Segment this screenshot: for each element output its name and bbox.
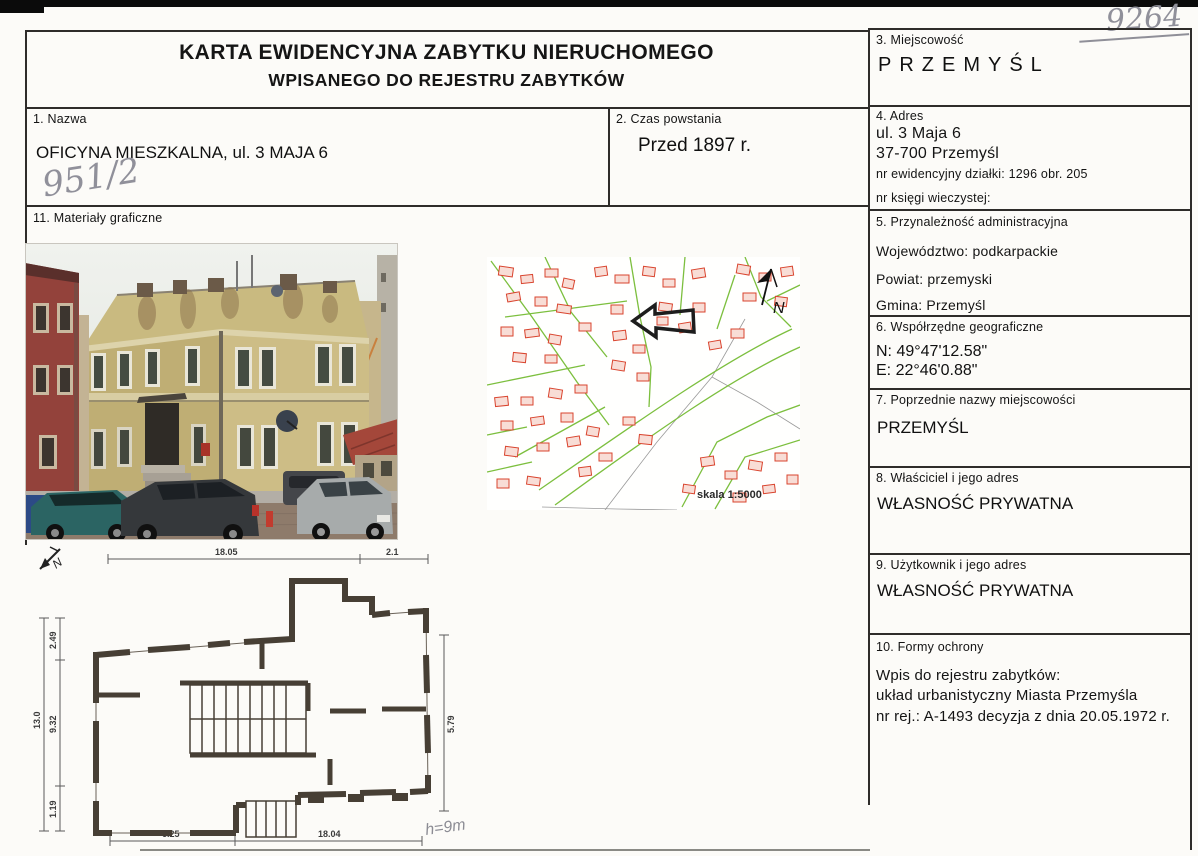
card-title-line1: KARTA EWIDENCYJNA ZABYTKU NIERUCHOMEGO bbox=[25, 41, 868, 65]
downspout bbox=[219, 331, 223, 495]
chimney bbox=[173, 280, 187, 294]
map-north-label: N bbox=[773, 300, 785, 317]
address-city: 37-700 Przemyśl bbox=[876, 144, 1088, 164]
grid-line bbox=[25, 205, 868, 207]
mid-cornice bbox=[83, 393, 369, 400]
dimension-label: 18.05 bbox=[215, 547, 238, 557]
card-title-line2: WPISANEGO DO REJESTRU ZABYTKÓW bbox=[25, 70, 868, 91]
grid-line bbox=[25, 107, 868, 109]
grid-line bbox=[868, 209, 1192, 211]
protection-line3: nr rej.: A-1493 decyzja z dnia 20.05.197… bbox=[876, 707, 1170, 727]
commune-value: Gmina: Przemyśl bbox=[876, 297, 986, 313]
user-value: WŁASNOŚĆ PRYWATNA bbox=[877, 581, 1073, 601]
voivodeship-value: Województwo: podkarpackie bbox=[876, 243, 1058, 259]
section-3-label: 3. Miejscowość bbox=[876, 33, 964, 47]
grid-line bbox=[868, 388, 1192, 390]
scan-edge-artifact-top bbox=[0, 0, 1198, 7]
section-10-label: 10. Formy ochrony bbox=[876, 640, 984, 654]
grid-line bbox=[868, 28, 1192, 30]
section-6-label: 6. Współrzędne geograficzne bbox=[876, 320, 1043, 334]
section-7-label: 7. Poprzednie nazwy miejscowości bbox=[876, 393, 1076, 407]
grid-line bbox=[868, 553, 1192, 555]
wall-box bbox=[201, 443, 210, 456]
neighbour-building-left bbox=[25, 263, 79, 507]
floor-plan-illustration: N 18.05 2.1 13.0 2.49 9.3 bbox=[30, 543, 470, 855]
map-scale-label: skala 1:5000 bbox=[697, 489, 762, 501]
grid-line bbox=[868, 28, 870, 805]
chimney bbox=[323, 281, 337, 293]
address-plot-number: nr ewidencyjny działki: 1296 obr. 205 bbox=[876, 167, 1088, 183]
grid-line bbox=[868, 466, 1192, 468]
building-photo bbox=[25, 243, 398, 540]
satellite-dish-icon bbox=[271, 285, 283, 297]
former-names-value: PRZEMYŚL bbox=[877, 418, 969, 438]
dimension-label: 9.32 bbox=[48, 715, 58, 733]
dimension-label: 2.1 bbox=[386, 547, 399, 557]
owner-value: WŁASNOŚĆ PRYWATNA bbox=[877, 494, 1073, 514]
protection-line2: układ urbanistyczny Miasta Przemyśla bbox=[876, 686, 1170, 706]
location-map-illustration: N skala 1:5000 bbox=[487, 257, 800, 510]
heritage-record-card: 9264 KARTA EWIDENCYJNA ZABYTKU NIERUCHOM… bbox=[0, 0, 1198, 856]
address-street: ul. 3 Maja 6 bbox=[876, 124, 1088, 144]
bollard bbox=[266, 511, 273, 527]
dimension-label: 5.79 bbox=[446, 715, 456, 733]
dimension-label: 18.04 bbox=[318, 829, 341, 839]
address-block: ul. 3 Maja 6 37-700 Przemyśl nr ewidency… bbox=[876, 124, 1088, 206]
chimney bbox=[137, 283, 153, 297]
grid-line bbox=[868, 105, 1192, 107]
section-2-label: 2. Czas powstania bbox=[616, 112, 722, 126]
chimney bbox=[208, 278, 224, 292]
coordinate-east: E: 22°46'0.88" bbox=[876, 362, 977, 380]
construction-date-value: Przed 1897 r. bbox=[638, 135, 751, 157]
grid-line bbox=[25, 30, 868, 32]
coordinate-north: N: 49°47'12.58" bbox=[876, 343, 987, 361]
chimney bbox=[280, 274, 297, 290]
protection-line1: Wpis do rejestru zabytków: bbox=[876, 666, 1170, 686]
locality-value: PRZEMYŚL bbox=[878, 54, 1050, 77]
section-4-label: 4. Adres bbox=[876, 109, 923, 123]
scan-number-handwritten: 9264 bbox=[1077, 0, 1190, 43]
section-9-label: 9. Użytkownik i jego adres bbox=[876, 558, 1026, 572]
section-1-label: 1. Nazwa bbox=[33, 112, 87, 126]
county-value: Powiat: przemyski bbox=[876, 271, 992, 287]
grid-line bbox=[608, 107, 610, 205]
tail-light bbox=[252, 505, 259, 516]
plan-north-label: N bbox=[50, 555, 65, 572]
dimension-label: 1.19 bbox=[48, 800, 58, 818]
plan-north-arrow-icon: N bbox=[40, 547, 65, 571]
gap-building bbox=[79, 315, 89, 495]
license-plate bbox=[377, 515, 390, 522]
entrance-steps bbox=[141, 465, 185, 473]
address-land-register: nr księgi wieczystej: bbox=[876, 191, 1088, 207]
entrance-door bbox=[145, 403, 179, 465]
grid-line bbox=[868, 633, 1192, 635]
main-staircase bbox=[190, 685, 306, 753]
floor-plan: N 18.05 2.1 13.0 2.49 9.3 bbox=[30, 543, 470, 855]
section-11-label: 11. Materiały graficzne bbox=[33, 211, 162, 225]
card-title: KARTA EWIDENCYJNA ZABYTKU NIERUCHOMEGO W… bbox=[25, 41, 868, 91]
grid-line bbox=[1190, 28, 1192, 850]
section-8-label: 8. Właściciel i jego adres bbox=[876, 471, 1019, 485]
dimension-label: 13.0 bbox=[32, 711, 42, 729]
building-photo-illustration bbox=[25, 243, 398, 540]
handwritten-height-note: h=9m bbox=[424, 816, 466, 838]
car-silver-hatchback bbox=[297, 477, 393, 540]
protection-block: Wpis do rejestru zabytków: układ urbanis… bbox=[876, 666, 1170, 727]
dimension-label: 2.49 bbox=[48, 631, 58, 649]
secondary-staircase bbox=[246, 801, 296, 837]
grid-line bbox=[868, 315, 1192, 317]
scan-edge-artifact-corner bbox=[0, 0, 44, 13]
location-map: N skala 1:5000 bbox=[487, 257, 800, 510]
section-5-label: 5. Przynależność administracyjna bbox=[876, 215, 1068, 229]
